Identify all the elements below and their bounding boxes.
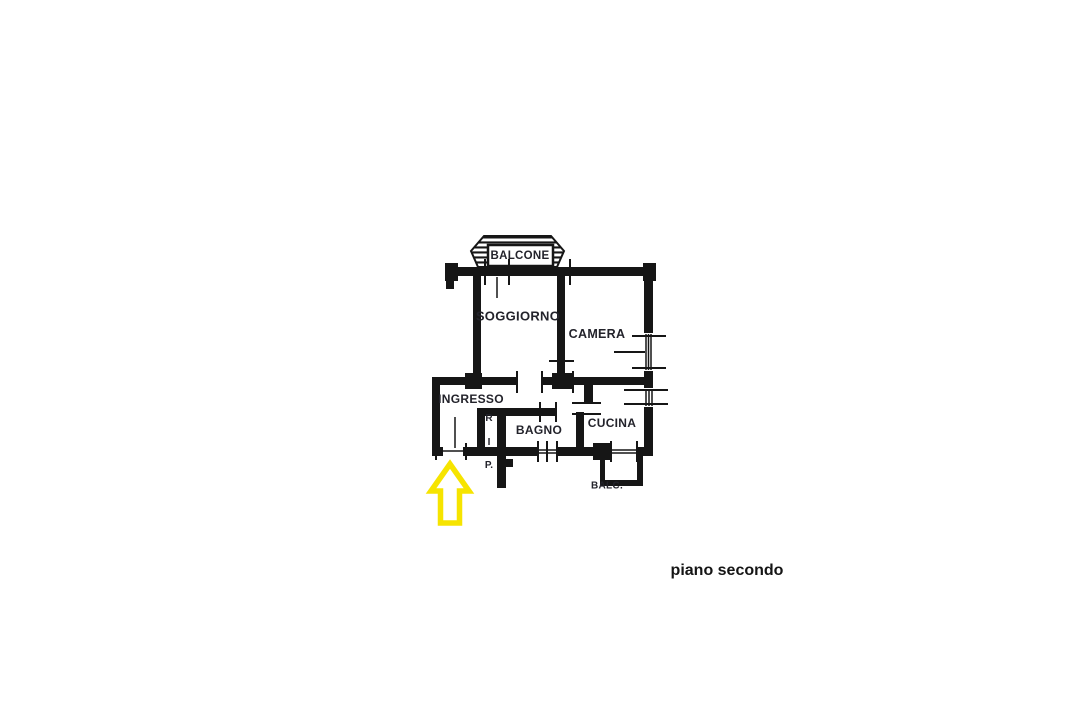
room-label-soggiorno: SOGGIORNO: [476, 309, 560, 324]
room-label-ripostiglio: R I P.: [482, 413, 496, 471]
floor-caption: piano secondo: [671, 562, 784, 580]
entrance-up-arrow-icon: [431, 464, 469, 523]
room-label-camera: CAMERA: [569, 327, 626, 341]
rip-letter-r: R: [485, 413, 492, 424]
floor-plan-drawing: [0, 0, 1085, 720]
floorplan-page: BALCONE SOGGIORNO CAMERA INGRESSO BAGNO …: [0, 0, 1085, 720]
room-label-cucina: CUCINA: [588, 416, 636, 430]
rip-letter-p: P.: [485, 460, 493, 471]
rip-letter-i: I: [488, 437, 491, 448]
room-label-ingresso: INGRESSO: [438, 392, 504, 406]
room-label-balcone: BALCONE: [491, 250, 550, 262]
room-label-bagno: BAGNO: [516, 423, 562, 437]
room-label-balc: BALC.: [591, 481, 623, 492]
